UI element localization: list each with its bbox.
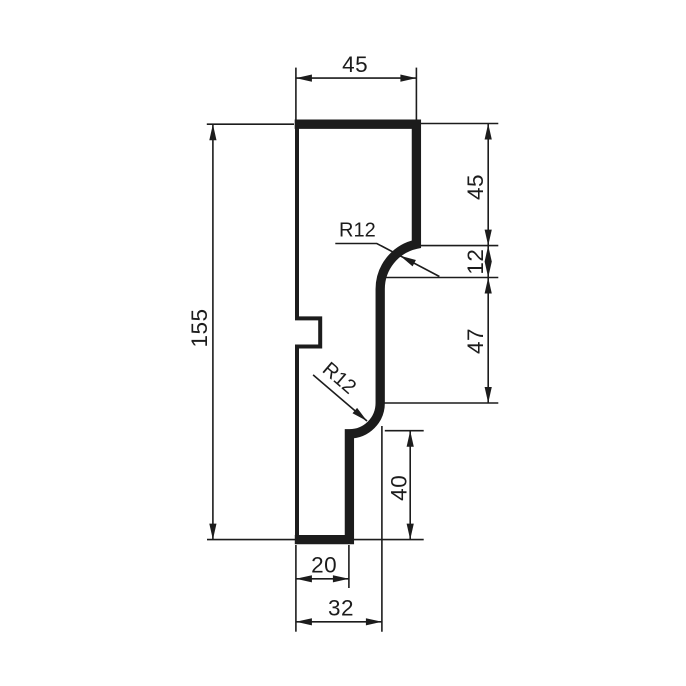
svg-text:32: 32 [328, 595, 354, 620]
svg-text:40: 40 [387, 475, 412, 501]
svg-text:45: 45 [342, 52, 368, 77]
svg-text:155: 155 [187, 308, 212, 347]
svg-text:20: 20 [311, 553, 337, 578]
svg-text:47: 47 [463, 328, 488, 354]
svg-text:45: 45 [463, 174, 488, 200]
svg-text:R12: R12 [339, 220, 376, 242]
svg-text:12: 12 [463, 249, 488, 275]
